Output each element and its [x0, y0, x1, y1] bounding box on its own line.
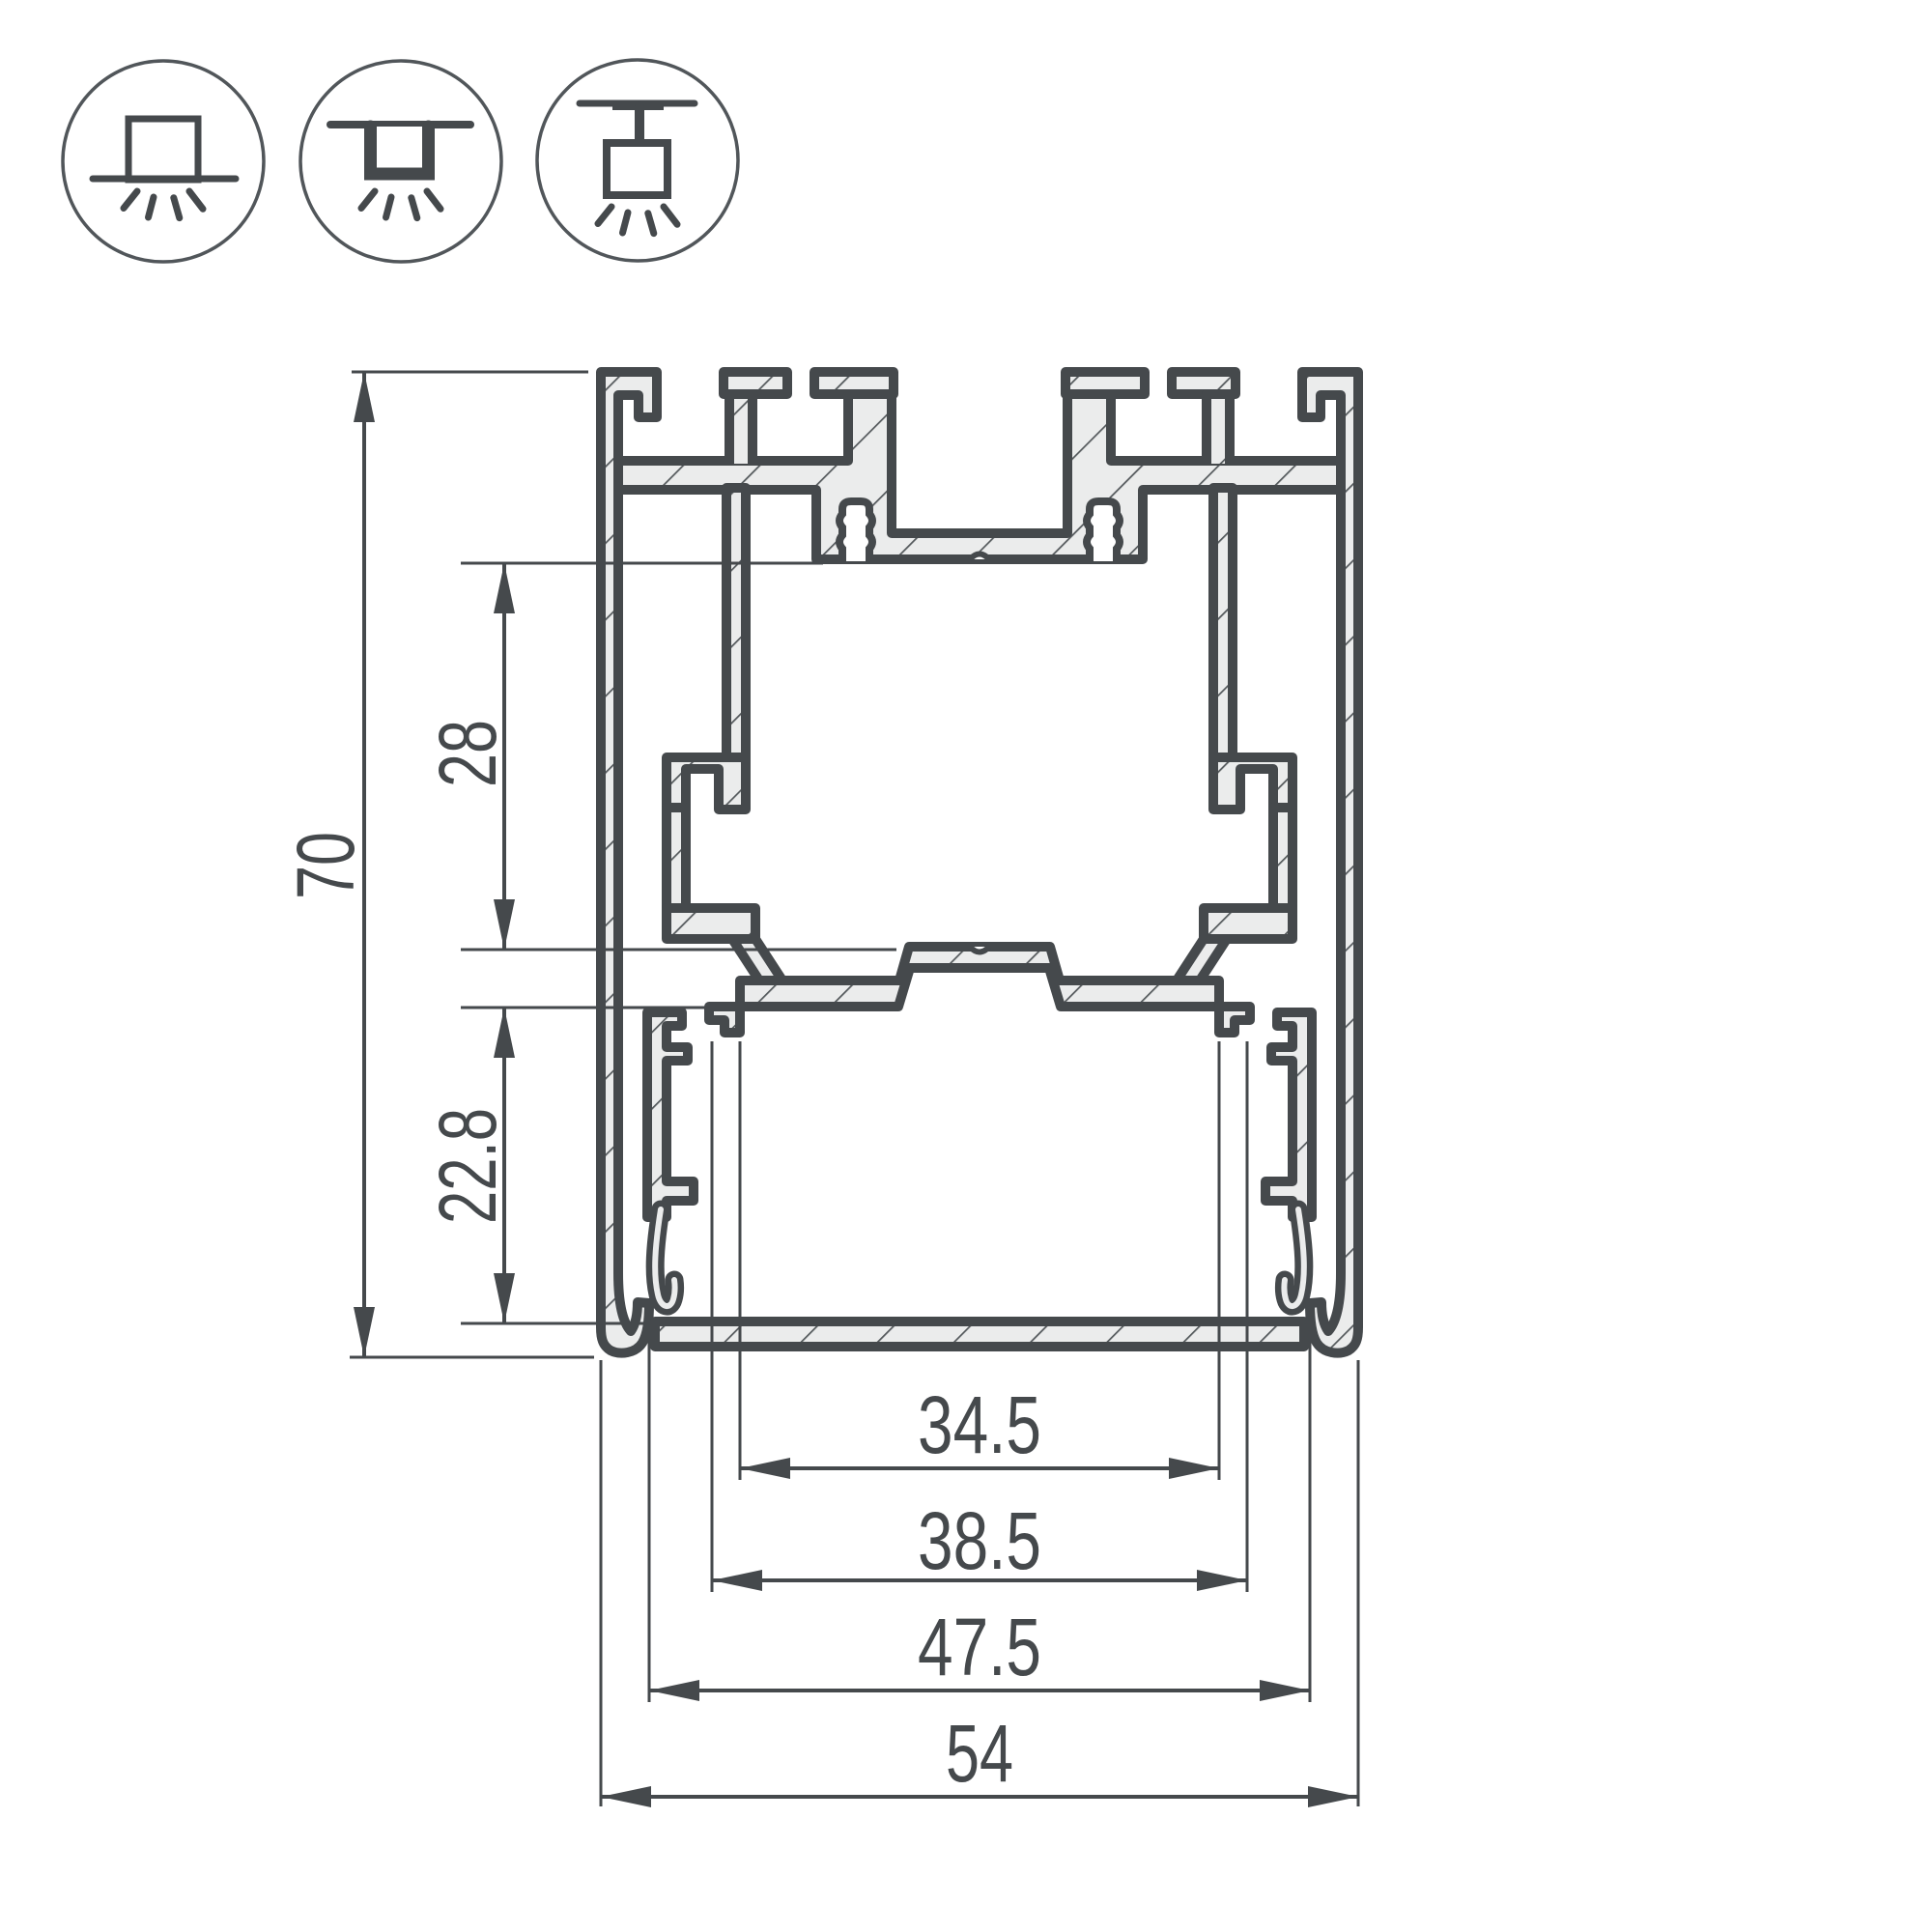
- svg-text:70: 70: [280, 832, 371, 899]
- svg-text:38.5: 38.5: [918, 1495, 1041, 1586]
- svg-text:22.8: 22.8: [422, 1108, 513, 1224]
- svg-text:34.5: 34.5: [918, 1379, 1041, 1470]
- svg-text:47.5: 47.5: [918, 1602, 1041, 1692]
- svg-text:28: 28: [422, 720, 513, 787]
- svg-text:54: 54: [946, 1708, 1013, 1799]
